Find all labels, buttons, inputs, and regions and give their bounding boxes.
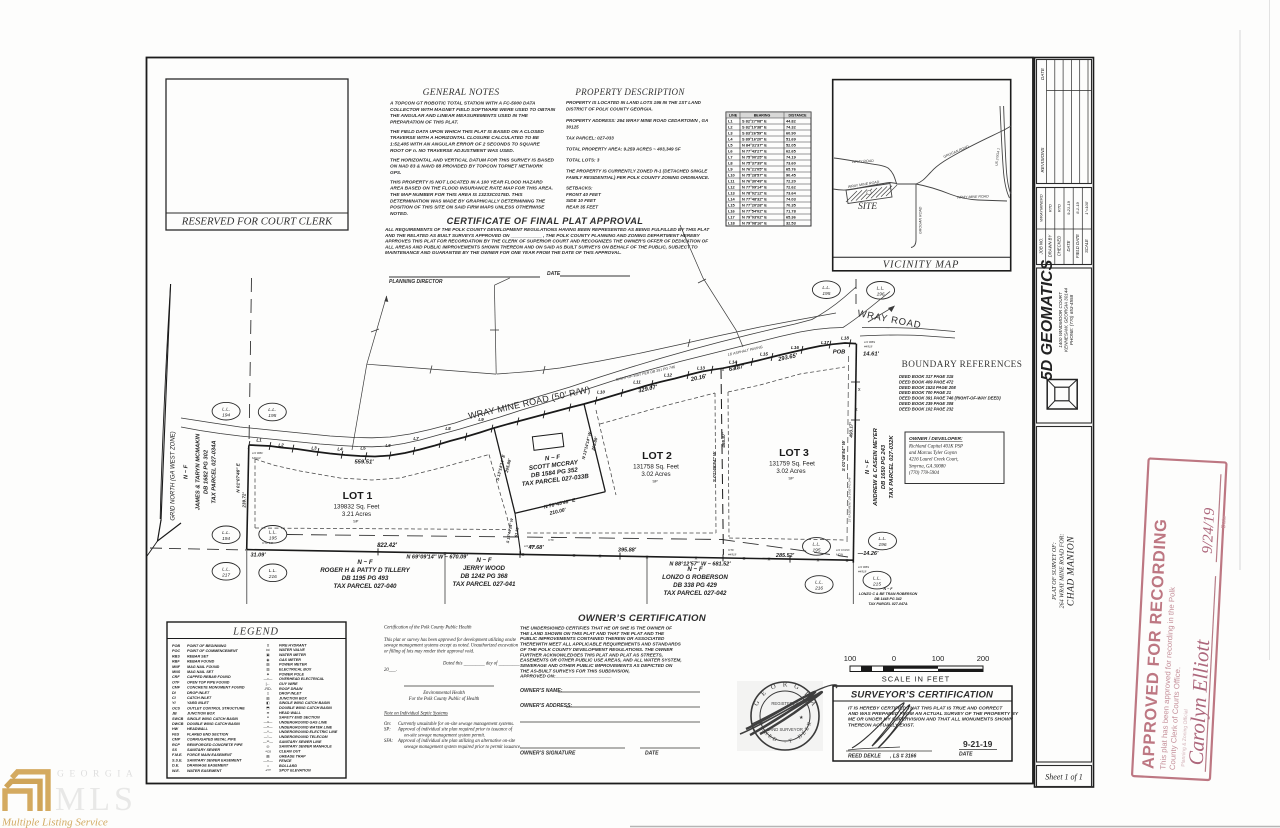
svg-text:TAX PARCEL 027-032K: TAX PARCEL 027-032K: [889, 435, 895, 499]
svg-text:DEED BOOK 391 PAGE 746 (RIGHT-: DEED BOOK 391 PAGE 746 (RIGHT-OF-WAY DEE…: [899, 396, 1001, 401]
svg-text:S 15°44′24″ W: S 15°44′24″ W: [506, 518, 514, 544]
svg-text:SINGLE WING CATCH BASIN: SINGLE WING CATCH BASIN: [279, 701, 330, 705]
svg-text:SCALE IN FEET: SCALE IN FEET: [882, 675, 950, 684]
svg-text:OWNER’S NAME:: OWNER’S NAME:: [520, 688, 563, 694]
svg-text:L12: L12: [664, 373, 672, 378]
svg-text:L15: L15: [728, 203, 736, 208]
svg-text:x: x: [573, 553, 576, 559]
svg-text:This plat or survey has been a: This plat or survey has been approved fo…: [384, 638, 516, 643]
svg-text:DOUBLE WING CATCH BASIN: DOUBLE WING CATCH BASIN: [279, 706, 332, 710]
svg-text:1″=100′: 1″=100′: [1084, 201, 1089, 215]
svg-text:S 89°16′20″ E: S 89°16′20″ E: [742, 137, 767, 142]
svg-text:—ʷ—: —ʷ—: [263, 725, 272, 729]
svg-text:L2: L2: [728, 125, 733, 130]
svg-text:0: 0: [892, 654, 896, 663]
svg-text:GROGAN ROAD: GROGAN ROAD: [943, 144, 970, 159]
svg-text:sewage management systems exce: sewage management systems except as note…: [384, 644, 519, 649]
svg-text:CONCRETE MONUMENT FOUND: CONCRETE MONUMENT FOUND: [187, 686, 245, 690]
svg-text:DB 338 PG 429: DB 338 PG 429: [673, 582, 717, 589]
svg-text:LOT 3: LOT 3: [779, 447, 809, 459]
svg-text:TAX PARCEL 027-040: TAX PARCEL 027-040: [334, 583, 397, 590]
svg-text:L7: L7: [728, 155, 733, 160]
svg-text:N ~ F: N ~ F: [476, 557, 492, 564]
svg-text:UNDERGROUND WATER LINE: UNDERGROUND WATER LINE: [279, 725, 333, 729]
svg-text:UNDERGROUND GAS LINE: UNDERGROUND GAS LINE: [279, 721, 327, 725]
svg-text:CRF: CRF: [172, 675, 180, 679]
svg-text:THE AS-BUILT SURVEYS FOR THIS: THE AS-BUILT SURVEYS FOR THIS SUBDIVISIO…: [520, 668, 630, 673]
svg-text:UNDERGROUND ELECTRIC LINE: UNDERGROUND ELECTRIC LINE: [279, 730, 338, 734]
svg-text:GENERAL NOTES: GENERAL NOTES: [423, 88, 500, 98]
svg-text:▯: ▯: [267, 692, 269, 696]
svg-text:9-21-19: 9-21-19: [1066, 200, 1071, 215]
svg-text:YI: YI: [172, 701, 176, 705]
svg-text:DEED BOOK 700 PAGE 21: DEED BOOK 700 PAGE 21: [899, 390, 952, 395]
svg-text:N 69°09′14″ W ~ 670.09′: N 69°09′14″ W ~ 670.09′: [406, 555, 468, 561]
svg-text:Approval of individual site pl: Approval of individual site plan require…: [397, 728, 513, 733]
svg-text:APPROVES THIS PLAT FOR RECORDA: APPROVES THIS PLAT FOR RECORDATION BY TH…: [384, 239, 708, 244]
svg-text:FAMILY RESIDENTIAL) PER POLK C: FAMILY RESIDENTIAL) PER POLK COUNTY ZONI…: [566, 175, 709, 180]
svg-text:JERRY WOOD: JERRY WOOD: [463, 565, 506, 572]
svg-text:N ~ F: N ~ F: [184, 464, 190, 479]
svg-text:MNF: MNF: [172, 665, 181, 669]
svg-text:20___.: 20___.: [384, 668, 397, 673]
svg-text:DB 1242 PG 368: DB 1242 PG 368: [460, 573, 508, 580]
svg-text:•: •: [267, 764, 269, 768]
svg-text:S 82°10′38″ E: S 82°10′38″ E: [742, 125, 767, 130]
svg-text:62.65: 62.65: [786, 149, 797, 154]
svg-text:N 79°03′02″ E: N 79°03′02″ E: [742, 215, 767, 220]
svg-text:TAX PARCEL 027-041: TAX PARCEL 027-041: [453, 581, 516, 588]
svg-text:KENNESAW, GEORGIA 30144: KENNESAW, GEORGIA 30144: [1064, 288, 1069, 352]
svg-text:L2: L2: [278, 443, 284, 448]
svg-text:AND THE RELATED AS BUILT SURVE: AND THE RELATED AS BUILT SURVEYS APPROVE…: [384, 233, 701, 238]
svg-text:DATE: DATE: [1066, 240, 1071, 251]
svg-text:DATE: DATE: [959, 752, 973, 758]
svg-text:For the Polk County Public of: For the Polk County Public of Health: [408, 697, 480, 702]
svg-text:L8: L8: [445, 426, 451, 431]
svg-text:AREA BASED ON THE FLOOD INSURA: AREA BASED ON THE FLOOD INSURANCE RATE M…: [389, 186, 553, 192]
svg-text:205.88′: 205.88′: [590, 435, 599, 452]
svg-text:CMP: CMP: [172, 738, 181, 742]
svg-text:L.L.: L.L.: [877, 286, 885, 292]
svg-text:Date: Date: [1221, 515, 1228, 529]
svg-text:L12: L12: [728, 185, 736, 190]
svg-text:3.02 Acres: 3.02 Acres: [641, 471, 670, 478]
svg-text:OTF: OTF: [548, 538, 554, 542]
svg-text:195: 195: [812, 548, 820, 554]
svg-text:OWNER / DEVELOPER:: OWNER / DEVELOPER:: [909, 436, 963, 442]
svg-text:S 83°26′59″ E: S 83°26′59″ E: [742, 131, 767, 136]
svg-text:FIELD DATE: FIELD DATE: [1075, 234, 1080, 258]
svg-text:ON NAD 83 & NAVD 88 PROVIDED B: ON NAD 83 & NAVD 88 PROVIDED BY TOPCON T…: [390, 164, 544, 170]
svg-text:THIS PROPERTY IS NOT LOCATED I: THIS PROPERTY IS NOT LOCATED IN A 100 YE…: [390, 179, 543, 185]
svg-text:MNLR: MNLR: [252, 456, 261, 460]
svg-text:S 01°46′54″ W: S 01°46′54″ W: [841, 440, 846, 471]
svg-text:◧: ◧: [266, 701, 270, 705]
svg-text:L1: L1: [728, 119, 733, 124]
svg-text:1:52,405 WITH AN ANGULAR ERROR: 1:52,405 WITH AN ANGULAR ERROR OF 2 SECO…: [390, 142, 541, 148]
svg-text:IT IS HEREBY CERTIFIED THAT TH: IT IS HEREBY CERTIFIED THAT THIS PLAT IS…: [848, 706, 1003, 712]
svg-text:FRONT 40 FEET: FRONT 40 FEET: [566, 192, 602, 197]
svg-text:N ~ F: N ~ F: [884, 587, 894, 591]
svg-text:LONZO C & BE TRAN ROBERSON: LONZO C & BE TRAN ROBERSON: [859, 592, 918, 596]
svg-text:and Marcus Tyler Goynn: and Marcus Tyler Goynn: [909, 451, 957, 456]
svg-text:BEARING: BEARING: [754, 114, 771, 118]
svg-text:—ᵉ—: —ᵉ—: [264, 730, 273, 734]
svg-text:x: x: [817, 557, 820, 563]
svg-text:N 76°21′05″ E: N 76°21′05″ E: [742, 167, 767, 172]
svg-text:285.52′: 285.52′: [775, 553, 795, 559]
svg-text:MNS: MNS: [172, 670, 181, 674]
svg-text:L8: L8: [728, 161, 733, 166]
svg-text:N 77°43′27″ E: N 77°43′27″ E: [742, 149, 767, 154]
svg-text:BOUNDARY REFERENCES: BOUNDARY REFERENCES: [902, 359, 1023, 369]
svg-text:OVERHEAD ELECTRICAL: OVERHEAD ELECTRICAL: [279, 677, 325, 681]
svg-text:L.L.: L.L.: [822, 285, 830, 291]
svg-text:215: 215: [872, 581, 881, 587]
svg-text:N 79°08′16″ E: N 79°08′16″ E: [742, 221, 767, 226]
svg-text:—×—: —×—: [263, 759, 273, 763]
svg-text:W.E.: W.E.: [172, 769, 180, 773]
svg-text:DWCB: DWCB: [172, 722, 184, 726]
svg-text:OTF: OTF: [172, 680, 180, 684]
svg-text:THEREWITH MEET ALL APPLICABLE: THEREWITH MEET ALL APPLICABLE REQUIREMEN…: [520, 642, 682, 647]
svg-text:63.87′: 63.87′: [728, 364, 745, 373]
svg-text:PROPERTY DESCRIPTION: PROPERTY DESCRIPTION: [574, 87, 685, 97]
svg-text:PHONE: (770) 653-4558: PHONE: (770) 653-4558: [1069, 294, 1074, 345]
svg-text:x: x: [695, 555, 698, 561]
svg-text:PUBLIC IMPROVEMENTS CONTAINED: PUBLIC IMPROVEMENTS CONTAINED THEREIN OR…: [520, 636, 665, 641]
svg-text:217: 217: [221, 573, 230, 579]
svg-text:239.72′: 239.72′: [242, 492, 247, 509]
svg-text:ALL AREAS AND PUBLIC IMPROVEME: ALL AREAS AND PUBLIC IMPROVEMENTS SHOWN …: [384, 244, 698, 249]
svg-text:L.L.: L.L.: [812, 542, 820, 548]
svg-text:LINE: LINE: [729, 114, 738, 118]
svg-text:73.60: 73.60: [786, 161, 796, 166]
svg-text:65.76: 65.76: [786, 167, 797, 172]
svg-text:GUY WIRE: GUY WIRE: [279, 682, 298, 686]
svg-text:—ᵍ—: —ᵍ—: [264, 721, 273, 725]
svg-text:GAS METER: GAS METER: [279, 658, 301, 662]
svg-text:1/2 RBF: 1/2 RBF: [252, 451, 263, 455]
svg-text:N 77°09′14″ E: N 77°09′14″ E: [742, 185, 767, 190]
svg-text:HW: HW: [172, 727, 179, 731]
svg-text:L3: L3: [311, 446, 317, 451]
svg-text:Certification of the Polk Coun: Certification of the Polk County Public …: [384, 626, 472, 631]
svg-text:395.88′: 395.88′: [618, 548, 637, 554]
svg-text:#4918: #4918: [858, 570, 867, 574]
svg-text:60.90: 60.90: [786, 131, 796, 136]
svg-text:30125: 30125: [566, 124, 579, 129]
svg-text:L.L.: L.L.: [815, 580, 823, 586]
svg-text:329.07′: 329.07′: [638, 384, 659, 394]
svg-text:POINT OF COMMENCEMENT: POINT OF COMMENCEMENT: [187, 649, 239, 653]
svg-text:SANITARY SEWER MANHOLE: SANITARY SEWER MANHOLE: [279, 745, 332, 749]
svg-text:x: x: [768, 557, 771, 563]
svg-text:264 WRAY MINE ROAD FOR:: 264 WRAY MINE ROAD FOR:: [1059, 534, 1066, 609]
svg-text:FLARED END SECTION: FLARED END SECTION: [187, 732, 229, 736]
svg-text:MAG NAIL FOUND: MAG NAIL FOUND: [187, 665, 220, 669]
svg-text:FORCE MAIN EASEMENT: FORCE MAIN EASEMENT: [187, 753, 233, 757]
svg-text:DEED BOOK 1524 PAGE 208: DEED BOOK 1524 PAGE 208: [899, 385, 956, 390]
svg-text:Richland Capital 401K PSP: Richland Capital 401K PSP: [908, 445, 963, 450]
svg-text:THE ANGULAR AND LINEAR MEASURE: THE ANGULAR AND LINEAR MEASUREMENTS USED…: [390, 113, 529, 119]
svg-text:ANDREW & CASEIN MEYER: ANDREW & CASEIN MEYER: [873, 427, 879, 506]
svg-text:Currently unsuitable for on-si: Currently unsuitable for on-site sewage …: [398, 722, 514, 727]
svg-text:OUTLET CONTROL STRUCTURE: OUTLET CONTROL STRUCTURE: [187, 706, 245, 710]
svg-text:31.09′: 31.09′: [250, 553, 266, 559]
svg-text:YARD INLET: YARD INLET: [187, 701, 210, 705]
svg-text:100: 100: [932, 654, 945, 663]
svg-text:DEED BOOK 239 PAGE 308: DEED BOOK 239 PAGE 308: [899, 401, 954, 406]
svg-text:S 01°46′54″ W: S 01°46′54″ W: [712, 451, 717, 482]
svg-text:SP: SP: [353, 519, 359, 524]
svg-text:L.L.: L.L.: [878, 536, 886, 542]
svg-text:RTD: RTD: [1048, 204, 1053, 212]
svg-text:US 27/GA 1: US 27/GA 1: [995, 148, 1001, 166]
svg-text:x: x: [743, 556, 746, 562]
svg-text:TOTAL PROPERTY AREA: 9.259 AC: TOTAL PROPERTY AREA: 9.259 ACRES ~ 403,3…: [566, 147, 681, 152]
svg-text:L14: L14: [728, 197, 736, 202]
svg-text:TAX PARCEL 027-034A: TAX PARCEL 027-034A: [212, 440, 218, 503]
svg-text:MAG NAIL SET: MAG NAIL SET: [187, 670, 214, 674]
svg-text:◎: ◎: [266, 745, 270, 749]
svg-text:TRAVERSE WITH A HORIZONTAL CLO: TRAVERSE WITH A HORIZONTAL CLOSURE CALCU…: [390, 135, 540, 141]
svg-text:L6: L6: [728, 149, 733, 154]
svg-text:LOT 2: LOT 2: [642, 450, 672, 462]
svg-text:196: 196: [878, 542, 886, 548]
svg-text:THE FIELD DATA UPON WHICH THIS: THE FIELD DATA UPON WHICH THIS PLAT IS B…: [390, 129, 544, 135]
svg-text:N 77°54′02″ E: N 77°54′02″ E: [742, 209, 767, 214]
svg-text:JUNCTION BOX: JUNCTION BOX: [279, 696, 307, 700]
svg-text:THE HORIZONTAL AND VERTICAL DA: THE HORIZONTAL AND VERTICAL DATUM FOR TH…: [390, 157, 555, 163]
svg-text:x: x: [846, 558, 849, 564]
svg-text:WRAY MINE ROAD: WRAY MINE ROAD: [957, 194, 989, 199]
svg-text:PROPERTY ADDRESS: 264 WRAY MI: PROPERTY ADDRESS: 264 WRAY MINE ROAD CED…: [566, 118, 708, 123]
svg-text:sewage management system requi: sewage management system required prior …: [404, 745, 521, 750]
svg-text:OCS: OCS: [172, 706, 181, 710]
svg-text:Smyrna, GA 30080: Smyrna, GA 30080: [909, 464, 946, 469]
svg-text:L14: L14: [729, 360, 737, 365]
svg-text:194: 194: [222, 412, 230, 418]
svg-text:WRAY MINE ROAD (50′ R/W): WRAY MINE ROAD (50′ R/W): [467, 384, 591, 421]
svg-text:▣: ▣: [266, 653, 270, 657]
svg-text:CAPPED REBAR FOUND: CAPPED REBAR FOUND: [187, 675, 231, 679]
svg-text:HEADWALL: HEADWALL: [187, 727, 209, 731]
svg-text:N 78°02′12″ E: N 78°02′12″ E: [742, 191, 767, 196]
svg-text:SP:: SP:: [384, 728, 391, 733]
svg-text:THE MAP NUMBER FOR THIS AREA I: THE MAP NUMBER FOR THIS AREA IS 13233C01…: [390, 192, 523, 198]
svg-text:15′ EASEMENT DB 1650 PG 246: 15′ EASEMENT DB 1650 PG 246: [848, 477, 852, 522]
svg-text:BOLLARD: BOLLARD: [279, 764, 297, 768]
svg-text:L10: L10: [728, 173, 735, 178]
svg-text:REBAR FOUND: REBAR FOUND: [187, 660, 215, 664]
svg-text:L.L.: L.L.: [269, 530, 277, 536]
svg-text:GREASE TRAP: GREASE TRAP: [279, 754, 306, 758]
svg-text:FES: FES: [172, 732, 180, 736]
svg-text:74.19: 74.19: [786, 155, 797, 160]
svg-text:195: 195: [268, 413, 276, 419]
svg-text:SAFETY END SECTION: SAFETY END SECTION: [279, 716, 320, 720]
svg-text:POWER POLE: POWER POLE: [279, 672, 305, 676]
svg-text:20.16′: 20.16′: [689, 374, 707, 384]
svg-text:✷: ✷: [266, 672, 270, 676]
svg-text:L3: L3: [728, 131, 733, 136]
svg-text:RCP: RCP: [172, 743, 180, 747]
svg-text:9/24/19: 9/24/19: [1200, 507, 1218, 554]
svg-text:91.85′: 91.85′: [514, 525, 520, 537]
svg-text:70.35: 70.35: [786, 203, 797, 208]
svg-text:OF THE POLK COUNTY DEVELOPMENT: OF THE POLK COUNTY DEVELOPMENT REGULATIO…: [520, 647, 673, 652]
svg-text:73.64: 73.64: [786, 191, 797, 196]
svg-text:3.21 Acres: 3.21 Acres: [342, 511, 371, 518]
svg-text:+ˣˣˣ: +ˣˣˣ: [265, 769, 272, 773]
svg-text:195: 195: [822, 291, 830, 297]
svg-text:LEGEND: LEGEND: [232, 627, 279, 638]
svg-text:—ˢˢ—: —ˢˢ—: [263, 740, 273, 744]
svg-text:L13: L13: [697, 366, 705, 371]
svg-text:★: ★: [799, 715, 804, 721]
svg-text:L.L.: L.L.: [873, 575, 881, 581]
svg-text:L11: L11: [633, 380, 641, 385]
svg-text:x: x: [858, 387, 861, 393]
svg-text:196: 196: [877, 292, 885, 298]
svg-text:ROGER H & PATTY D TILLERY: ROGER H & PATTY D TILLERY: [320, 567, 410, 574]
svg-text:200: 200: [977, 654, 990, 663]
svg-text:OWNER’S ADDRESS:: OWNER’S ADDRESS:: [520, 703, 572, 709]
svg-text:465.87′: 465.87′: [721, 432, 726, 449]
svg-text:THE PROPERTY IS CURRENTLY ZONE: THE PROPERTY IS CURRENTLY ZONED R-1 (DET…: [566, 169, 708, 174]
svg-text:ROOF DRAIN: ROOF DRAIN: [279, 687, 303, 691]
svg-text:⧖: ⧖: [267, 643, 270, 647]
svg-text:216: 216: [268, 574, 277, 580]
svg-text:4216 Laurel Creek Court,: 4216 Laurel Creek Court,: [909, 458, 958, 463]
svg-text:L13: L13: [728, 191, 736, 196]
svg-text:Approval of individual site pl: Approval of individual site plan utilizi…: [397, 739, 515, 744]
svg-text:216: 216: [814, 586, 823, 592]
svg-text:PROPERTY IS LOCATED IN LAND LO: PROPERTY IS LOCATED IN LAND LOTS 195 IN …: [566, 100, 702, 105]
svg-text:N 77°20′28″ E: N 77°20′28″ E: [742, 203, 767, 208]
svg-text:194: 194: [222, 536, 230, 542]
svg-text:MON: MON: [836, 553, 844, 557]
svg-text:ME OR UNDER MY SUPERVISION AND: ME OR UNDER MY SUPERVISION AND THAT ALL …: [848, 717, 1013, 723]
svg-text:-RD-: -RD-: [264, 687, 273, 691]
svg-text:DRAWN BY: DRAWN BY: [1048, 234, 1053, 258]
svg-text:TOTAL LOTS: 3: TOTAL LOTS: 3: [566, 158, 600, 163]
svg-text:DB 1682 PG 302: DB 1682 PG 302: [204, 449, 210, 494]
svg-text:GEORGIA: GEORGIA: [57, 770, 138, 780]
svg-text:5D GEOMATICS: 5D GEOMATICS: [1039, 259, 1056, 380]
svg-text:TAX PARCEL 027-042: TAX PARCEL 027-042: [664, 590, 727, 597]
svg-text:DETERMINATION WAS MADE BY GRAP: DETERMINATION WAS MADE BY GRAPHICALLY DE…: [390, 198, 546, 204]
svg-text:COLLECTOR WITH MAGNET FIELD SO: COLLECTOR WITH MAGNET FIELD SOFTWARE WER…: [390, 107, 556, 113]
svg-text:822.42′: 822.42′: [377, 543, 397, 549]
svg-text:⋈: ⋈: [266, 648, 270, 652]
svg-text:≡: ≡: [267, 716, 269, 720]
svg-text:SCALE: SCALE: [1084, 239, 1089, 253]
svg-text:L.L.: L.L.: [222, 567, 230, 573]
svg-text:72.62: 72.62: [786, 185, 797, 190]
svg-text:DATE: DATE: [1040, 67, 1045, 80]
svg-text:⬒: ⬒: [266, 706, 270, 710]
svg-text:493.17′: 493.17′: [849, 422, 854, 439]
svg-text:L.L.: L.L.: [269, 568, 277, 574]
svg-text:NOTED.: NOTED.: [390, 211, 408, 217]
svg-text:SANITARY SEWER EASEMENT: SANITARY SEWER EASEMENT: [187, 758, 242, 762]
svg-text:CORRUGATED METAL PIPE: CORRUGATED METAL PIPE: [187, 738, 237, 742]
svg-text:APPROVED ON:__________________: APPROVED ON:______________________: [519, 674, 612, 679]
svg-text:DEED BOOK 102 PAGE 232: DEED BOOK 102 PAGE 232: [899, 406, 954, 411]
svg-text:OTF: OTF: [728, 548, 734, 552]
svg-text:74.03: 74.03: [786, 197, 797, 202]
svg-text:JB: JB: [172, 712, 177, 716]
svg-text:72.20: 72.20: [786, 179, 796, 184]
svg-text:FIRE HYDRANT: FIRE HYDRANT: [279, 643, 307, 647]
svg-text:16′ ASPHALT PAVING: 16′ ASPHALT PAVING: [727, 345, 763, 357]
svg-text:DROP INLET: DROP INLET: [187, 691, 210, 695]
svg-text:SIDE 10 FEET: SIDE 10 FEET: [566, 198, 597, 203]
svg-text:▧: ▧: [266, 696, 270, 700]
svg-text:SP: SP: [652, 479, 658, 484]
svg-text:MLS: MLS: [55, 781, 137, 818]
svg-text:SWCB: SWCB: [172, 717, 184, 721]
svg-text:POC: POC: [172, 649, 180, 653]
svg-text:FENCE: FENCE: [279, 759, 292, 763]
svg-text:L4: L4: [337, 447, 343, 452]
svg-text:▤: ▤: [266, 754, 270, 758]
svg-text:DISTRICT OF POLK COUNTY GEORGI: DISTRICT OF POLK COUNTY GEORGIA.: [566, 106, 653, 111]
svg-text:JUNCTION BOX: JUNCTION BOX: [187, 712, 215, 716]
svg-text:Environmental Health: Environmental Health: [422, 691, 465, 696]
svg-text:WRAYMINERD: WRAYMINERD: [1038, 194, 1043, 222]
svg-text:REINFORCED CONCRETE PIPE: REINFORCED CONCRETE PIPE: [187, 743, 243, 747]
svg-text:R: R: [783, 682, 788, 689]
svg-text:71.78: 71.78: [786, 209, 797, 214]
svg-text:CI: CI: [172, 696, 177, 700]
svg-text:DB 1448 PG 342: DB 1448 PG 342: [874, 597, 901, 601]
svg-text:|←: |←: [266, 682, 271, 686]
svg-text:Multiple Listing Service: Multiple Listing Service: [1, 817, 108, 828]
svg-text:DEED BOOK 317 PAGE 315: DEED BOOK 317 PAGE 315: [899, 374, 954, 379]
svg-text:—▪—: —▪—: [264, 677, 273, 681]
svg-text:WATER EASEMENT: WATER EASEMENT: [187, 769, 222, 773]
svg-text:POSITION OF THIS SITE ON SAID: POSITION OF THIS SITE ON SAID FIRM MAPS …: [390, 205, 545, 211]
svg-text:CLEAN OUT: CLEAN OUT: [279, 749, 301, 753]
svg-text:N 84°31′37″ E: N 84°31′37″ E: [742, 143, 767, 148]
svg-text:Dated this _________ day of _: Dated this _________ day of _________ ,: [442, 662, 522, 667]
svg-text:CHAD MANION: CHAD MANION: [1067, 536, 1077, 606]
svg-text:52.05: 52.05: [786, 143, 797, 148]
svg-text:#4918: #4918: [728, 553, 737, 557]
svg-text:SEWERAGE AND OTHER PUBLIC IMPR: SEWERAGE AND OTHER PUBLIC IMPROVEMENTS A…: [520, 663, 673, 668]
svg-text:L10: L10: [597, 390, 605, 395]
svg-text:139832 Sq. Feet: 139832 Sq. Feet: [334, 504, 380, 511]
svg-text:CATCH INLET: CATCH INLET: [187, 696, 212, 700]
svg-text:, LS # 3166: , LS # 3166: [889, 754, 917, 760]
svg-text:1/2 RBS: 1/2 RBS: [524, 544, 535, 548]
svg-text:TAX PARCEL 027-047A: TAX PARCEL 027-047A: [868, 602, 908, 606]
svg-text:POWER METER: POWER METER: [279, 663, 307, 667]
svg-text:DB 1650 PG 243: DB 1650 PG 243: [881, 444, 887, 489]
svg-text:559.51′: 559.51′: [354, 460, 374, 466]
svg-text:OWNER’S SIGNATURE: OWNER’S SIGNATURE: [520, 751, 576, 757]
svg-text:90.45: 90.45: [786, 173, 797, 178]
svg-text:DB 1195 PG 493: DB 1195 PG 493: [342, 575, 389, 582]
svg-text:1/2 CONC: 1/2 CONC: [836, 548, 851, 552]
svg-text:RBS: RBS: [172, 654, 180, 658]
svg-text:DEED BOOK 409 PAGE 472: DEED BOOK 409 PAGE 472: [899, 379, 954, 384]
svg-text:(770) 778-5904: (770) 778-5904: [909, 471, 940, 476]
